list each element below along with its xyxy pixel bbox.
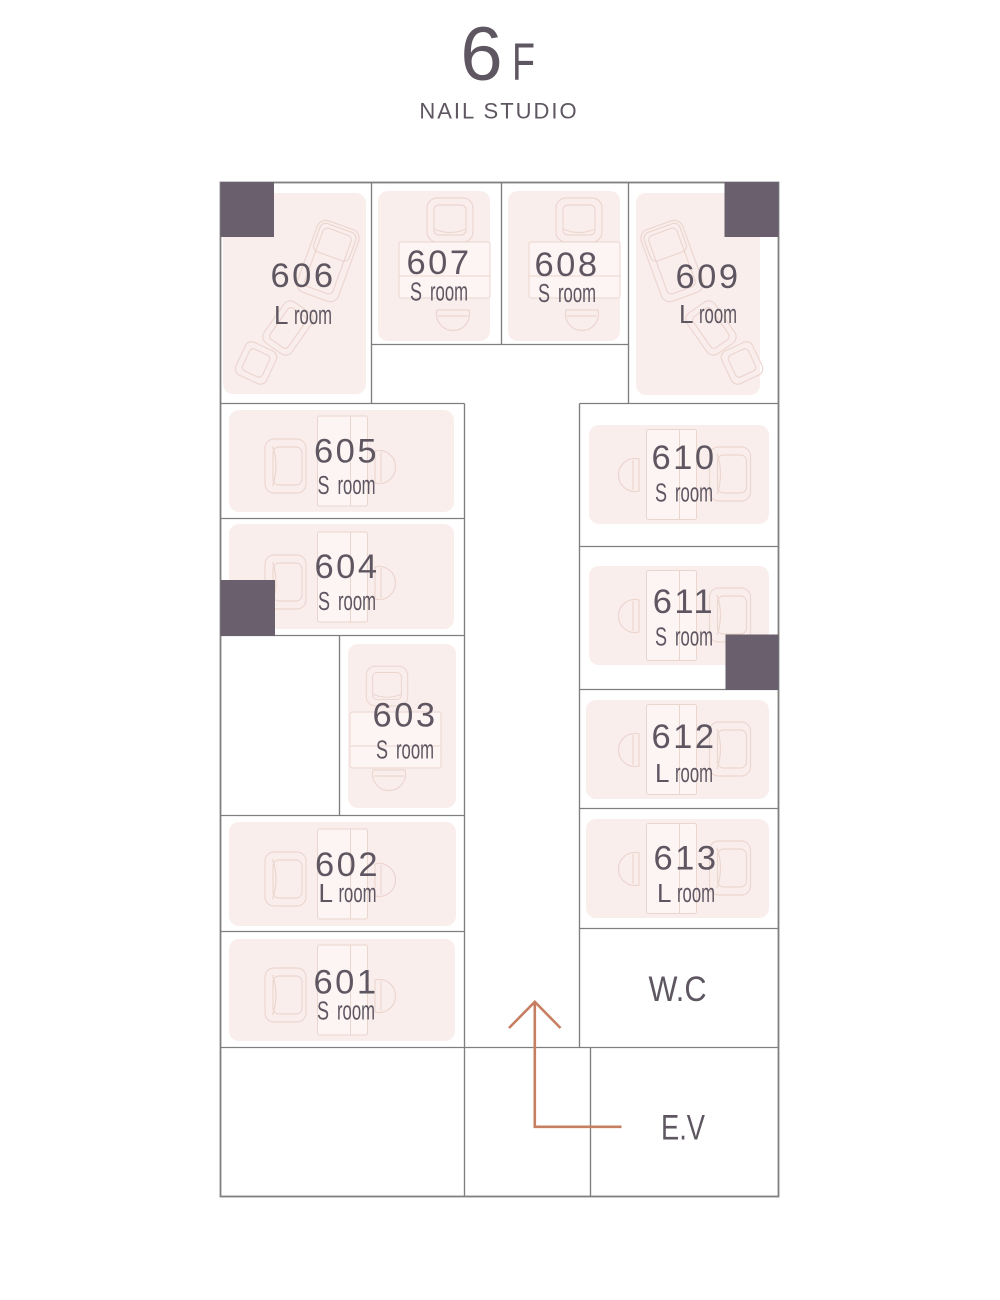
svg-text:S: S [655,622,667,652]
svg-text:room: room [558,280,596,308]
svg-text:6: 6 [460,12,502,97]
svg-text:606: 606 [270,257,335,295]
svg-text:605: 605 [314,433,379,471]
svg-text:S: S [410,277,422,307]
svg-text:L: L [274,300,288,330]
svg-text:NAIL STUDIO: NAIL STUDIO [419,99,578,124]
svg-text:604: 604 [314,548,379,586]
svg-text:S: S [318,586,330,616]
svg-text:room: room [430,279,468,307]
svg-text:room: room [675,480,713,508]
svg-text:S: S [317,996,329,1026]
svg-text:room: room [338,588,376,616]
svg-text:F: F [512,33,535,92]
svg-text:room: room [396,737,434,765]
svg-text:S: S [538,278,550,308]
svg-text:609: 609 [675,258,740,296]
svg-text:room: room [338,472,376,500]
svg-text:room: room [337,998,375,1026]
svg-text:610: 610 [651,439,716,477]
svg-text:room: room [677,880,715,908]
svg-text:E.V: E.V [661,1109,706,1148]
svg-text:S: S [318,470,330,500]
svg-text:L: L [319,878,333,908]
svg-text:613: 613 [653,840,718,878]
svg-text:room: room [675,624,713,652]
svg-text:room: room [699,301,737,329]
svg-text:612: 612 [651,718,716,756]
svg-text:W.C: W.C [649,970,707,1009]
svg-text:L: L [679,299,693,329]
svg-text:room: room [339,880,377,908]
svg-text:611: 611 [653,583,716,621]
svg-text:room: room [675,760,713,788]
svg-text:S: S [376,735,388,765]
svg-text:L: L [655,758,669,788]
svg-text:603: 603 [372,697,437,735]
svg-text:S: S [655,478,667,508]
svg-text:room: room [294,302,332,330]
svg-text:L: L [657,878,671,908]
